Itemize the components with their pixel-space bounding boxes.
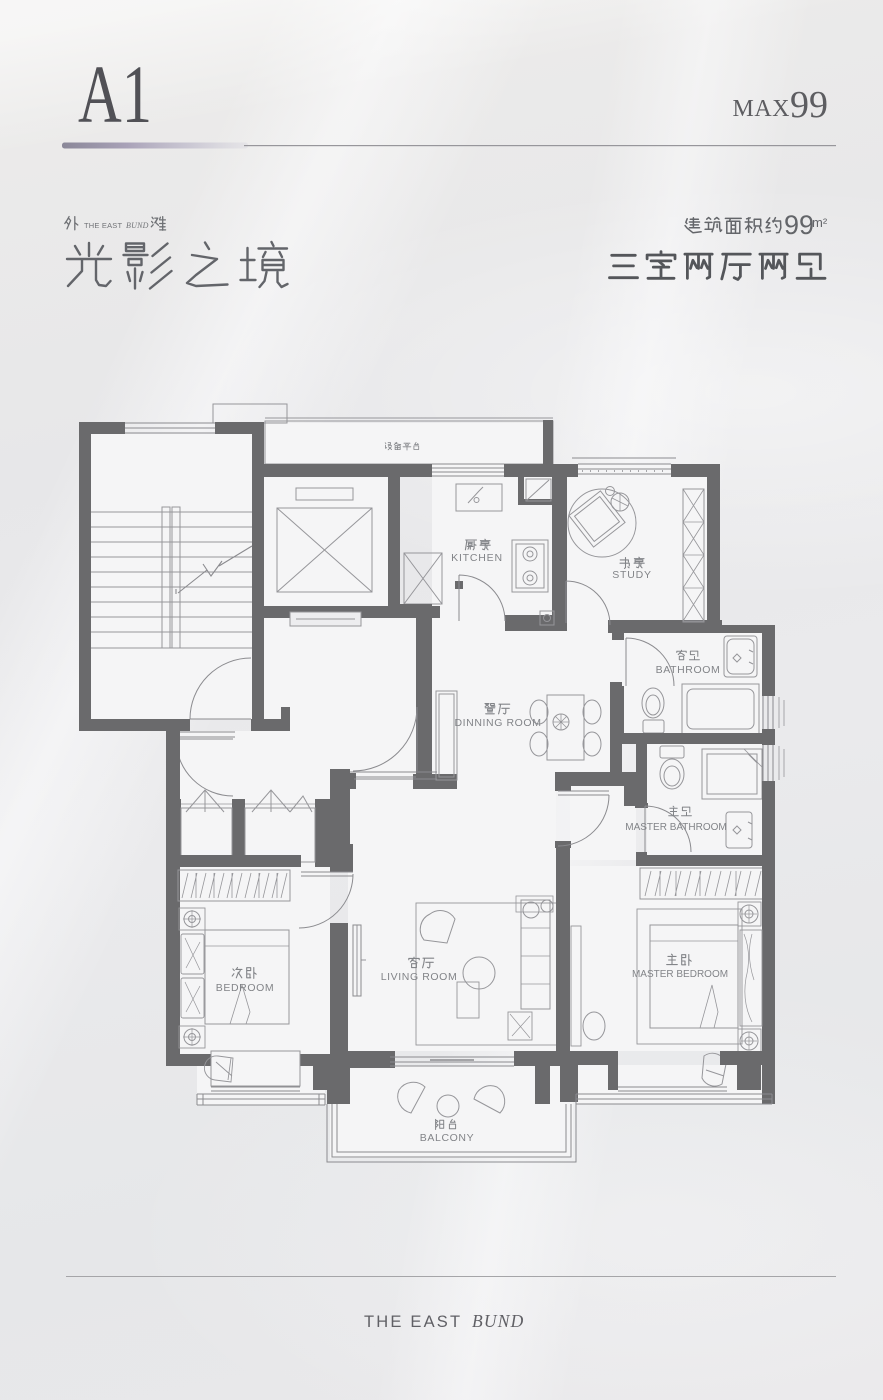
svg-text:LIVING ROOM: LIVING ROOM <box>381 971 458 983</box>
svg-text:MASTER BEDROOM: MASTER BEDROOM <box>632 969 728 980</box>
svg-text:DINNING ROOM: DINNING ROOM <box>454 717 541 729</box>
svg-text:KITCHEN: KITCHEN <box>451 552 503 564</box>
svg-text:MAX: MAX <box>732 96 790 122</box>
svg-text:THE EAST: THE EAST <box>364 1313 462 1331</box>
svg-text:THE EAST: THE EAST <box>84 221 122 230</box>
svg-text:BUND: BUND <box>472 1311 524 1331</box>
svg-text:99: 99 <box>784 210 814 240</box>
svg-text:BEDROOM: BEDROOM <box>216 982 274 994</box>
svg-text:BUND: BUND <box>126 221 149 230</box>
svg-text:A1: A1 <box>78 48 152 140</box>
svg-text:m²: m² <box>812 215 828 230</box>
svg-text:MASTER BATHROOM: MASTER BATHROOM <box>625 822 726 833</box>
svg-text:BATHROOM: BATHROOM <box>656 664 721 676</box>
svg-text:BALCONY: BALCONY <box>420 1132 474 1144</box>
svg-text:STUDY: STUDY <box>612 569 652 581</box>
svg-text:99: 99 <box>790 84 828 126</box>
